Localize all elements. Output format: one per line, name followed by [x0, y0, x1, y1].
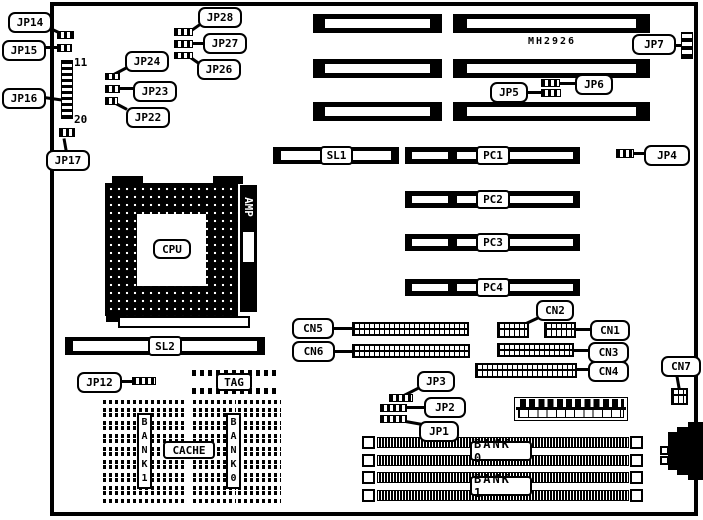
callout-jp26: JP26 [197, 59, 241, 80]
sram-chip [238, 465, 281, 477]
pc4-label: PC4 [476, 278, 510, 297]
cn4-header [475, 363, 577, 378]
sram-chip [145, 400, 185, 412]
isa-slot-6 [453, 102, 650, 121]
keyboard-connector [688, 422, 703, 480]
power-connector [514, 397, 628, 421]
jp2-jumper [380, 404, 407, 412]
isa-slot-stripe [467, 107, 636, 116]
callout-jp16: JP16 [2, 88, 46, 109]
callout-jp23: JP23 [133, 81, 177, 102]
jp7-jumper [681, 32, 693, 59]
chipset-part-number: MH2926 [514, 36, 590, 47]
callout-jp22: JP22 [126, 107, 170, 128]
callout-cn1: CN1 [590, 320, 630, 341]
cache-bank0-label: BANK0 [226, 413, 241, 489]
isa-slot-1 [313, 14, 442, 33]
slot-stripe [412, 284, 448, 291]
jp3-jumper [389, 394, 413, 402]
cn7-header [671, 388, 688, 405]
pc1-label: PC1 [476, 146, 510, 165]
sram-chip [238, 439, 281, 451]
sram-chip [238, 400, 281, 412]
slot-stripe [457, 284, 573, 291]
callout-jp5: JP5 [490, 82, 528, 103]
callout-pointer [44, 46, 58, 49]
cache-bank1-label: BANK1 [137, 413, 152, 489]
callout-jp28: JP28 [198, 7, 242, 28]
sram-chip [193, 400, 236, 412]
simm-bank0-label: BANK 0 [470, 441, 532, 461]
jp15-jumper [57, 44, 72, 52]
simm-latch [630, 489, 643, 502]
simm-latch [362, 471, 375, 484]
isa-slot-stripe [325, 19, 430, 28]
jp1-jumper [380, 415, 407, 423]
sram-chip [145, 491, 185, 503]
cn6-header [352, 344, 470, 358]
simm-bank1-label: BANK 1 [470, 476, 532, 496]
jp16-pin20-label: 20 [74, 113, 87, 126]
power-pins [518, 399, 624, 407]
callout-cn3: CN3 [588, 342, 629, 363]
slot-stripe [457, 196, 573, 203]
callout-pointer [119, 87, 134, 90]
isa-slot-3 [313, 102, 442, 121]
isa-slot-stripe [467, 19, 636, 28]
isa-slot-5 [453, 59, 650, 78]
cache-label: CACHE [163, 441, 215, 459]
jp6-jumper [541, 79, 560, 87]
isa-slot-stripe [467, 64, 636, 73]
callout-jp4: JP4 [644, 145, 690, 166]
slot-stripe [412, 196, 448, 203]
slot-stripe [457, 152, 573, 159]
simm-latch [630, 471, 643, 484]
simm-latch [362, 489, 375, 502]
slot-stripe [457, 239, 573, 246]
cn1-header [544, 322, 576, 338]
callout-pointer [574, 349, 589, 352]
simm-latch [630, 454, 643, 467]
jp26-jumper [174, 52, 193, 59]
jp17-jumper [59, 128, 75, 137]
cn5-header [352, 322, 469, 336]
jp14-jumper [57, 31, 74, 39]
sram-chip [238, 452, 281, 464]
jp5-jumper [541, 89, 561, 97]
jp12-jumper [132, 377, 156, 385]
cpu-label: CPU [153, 239, 191, 259]
tag-label: TAG [216, 373, 252, 391]
slot-stripe [412, 152, 448, 159]
callout-jp27: JP27 [203, 33, 247, 54]
slot-stripe [412, 239, 448, 246]
motherboard-diagram: MH2926 AMP [0, 0, 703, 520]
simm-latch [630, 436, 643, 449]
pc3-label: PC3 [476, 233, 510, 252]
callout-jp14: JP14 [8, 12, 52, 33]
sram-chip [193, 491, 236, 503]
sram-chip [103, 400, 143, 412]
simm-latch [362, 436, 375, 449]
callout-pointer [527, 91, 542, 94]
callout-jp24: JP24 [125, 51, 169, 72]
isa-slot-stripe [325, 64, 430, 73]
sram-chip [238, 426, 281, 438]
sram-chip [238, 478, 281, 490]
callout-jp7: JP7 [632, 34, 676, 55]
jp4-jumper [616, 149, 634, 158]
power-pads [518, 408, 624, 418]
jp27-jumper [174, 40, 193, 48]
callout-jp17: JP17 [46, 150, 90, 171]
callout-jp12: JP12 [77, 372, 122, 393]
sram-chip [238, 413, 281, 425]
callout-pointer [334, 327, 353, 330]
amp-label: AMP [241, 185, 255, 229]
isa-slot-2 [313, 59, 442, 78]
callout-cn7: CN7 [661, 356, 701, 377]
pc2-label: PC2 [476, 190, 510, 209]
keyboard-connector-notch [660, 456, 669, 465]
keyboard-connector-notch [660, 446, 669, 455]
isa-slot-4 [453, 14, 650, 33]
sl1-label: SL1 [320, 146, 353, 165]
zif-lever [118, 316, 250, 328]
jp22-jumper [105, 97, 118, 105]
callout-cn4: CN4 [588, 361, 629, 382]
callout-jp2: JP2 [424, 397, 466, 418]
callout-pointer [335, 350, 353, 353]
callout-pointer [406, 406, 425, 409]
callout-cn6: CN6 [292, 341, 335, 362]
callout-cn2: CN2 [536, 300, 574, 321]
callout-jp15: JP15 [2, 40, 46, 61]
sram-chip [103, 491, 143, 503]
jp16-pin11-label: 11 [74, 56, 87, 69]
callout-cn5: CN5 [292, 318, 334, 339]
sl2-label: SL2 [148, 336, 182, 356]
callout-jp1: JP1 [419, 421, 459, 442]
isa-slot-stripe [325, 107, 430, 116]
jp23-jumper [105, 85, 120, 93]
cn2-header [497, 322, 529, 338]
regulator-slot [243, 232, 254, 262]
simm-latch [362, 454, 375, 467]
jp24-jumper [105, 73, 120, 80]
sram-chip [238, 491, 281, 503]
jp28-jumper [174, 28, 193, 36]
callout-jp3: JP3 [417, 371, 455, 392]
jp16-header [61, 60, 73, 119]
callout-pointer [576, 328, 591, 331]
callout-jp6: JP6 [575, 74, 613, 95]
callout-pointer [559, 82, 576, 85]
cn3-header [497, 343, 574, 357]
